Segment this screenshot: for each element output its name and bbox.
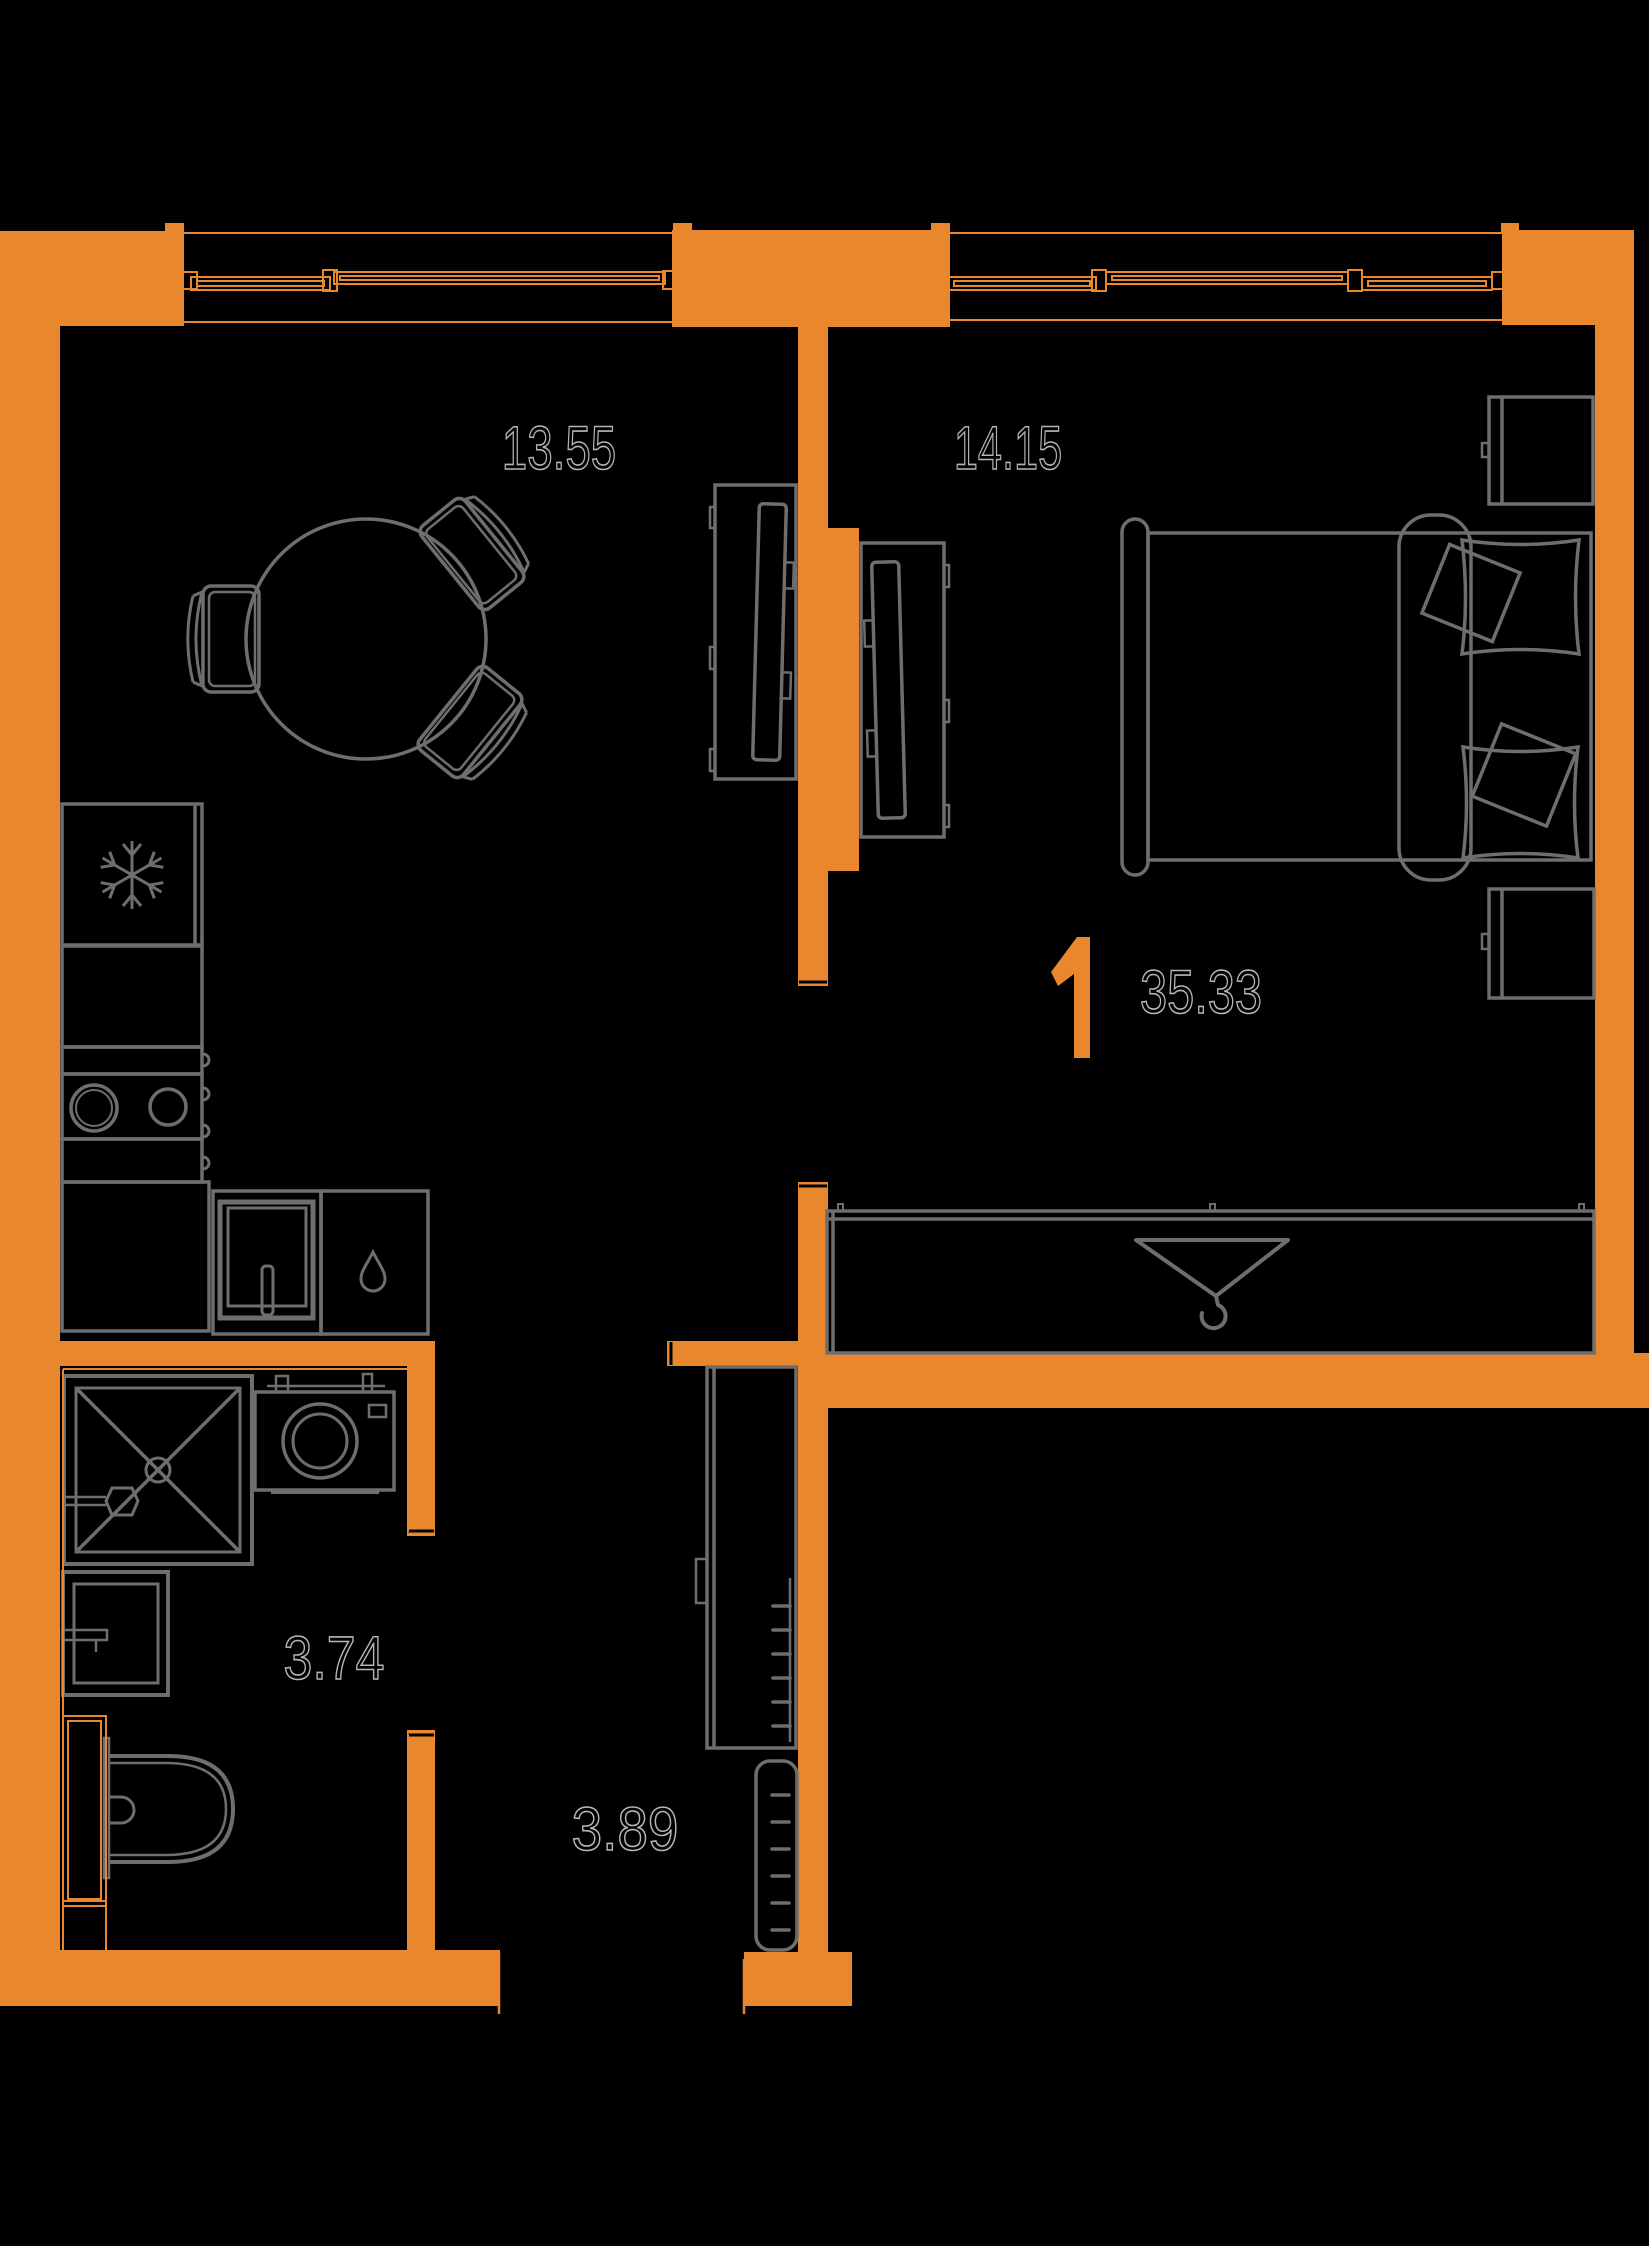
svg-text:13.55: 13.55 (502, 415, 616, 483)
svg-text:14.15: 14.15 (954, 415, 1062, 483)
svg-text:3.74: 3.74 (284, 1624, 385, 1692)
svg-text:35.33: 35.33 (1140, 958, 1262, 1026)
svg-text:3.89: 3.89 (572, 1795, 679, 1863)
